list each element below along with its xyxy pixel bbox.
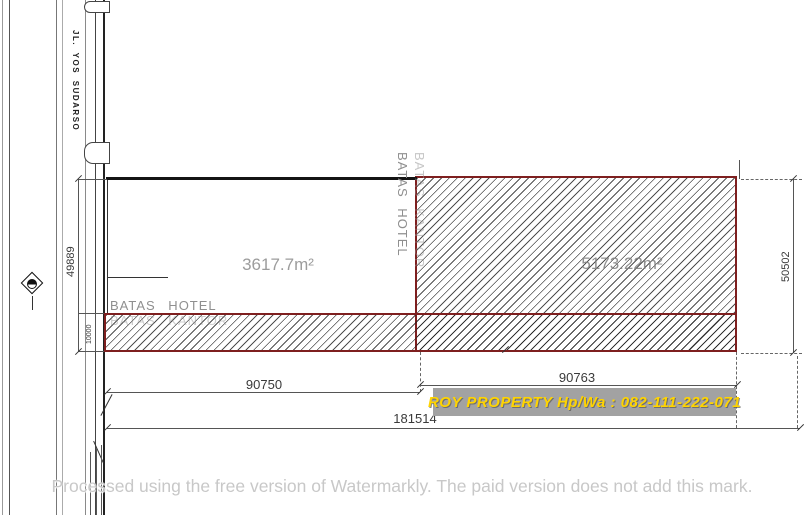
extension-line-dashed xyxy=(797,356,798,428)
extension-line xyxy=(739,160,740,179)
extension-line xyxy=(78,351,104,352)
property-ad-text: ROY PROPERTY Hp/Wa : 082-111-222-071 xyxy=(428,394,741,411)
culvert-symbol xyxy=(84,142,110,164)
batas-hotel-label-horizontal: BATAS HOTEL xyxy=(110,298,217,313)
dim-line-bottom-left xyxy=(107,392,420,393)
dim-tick xyxy=(797,424,804,431)
extension-line xyxy=(78,313,104,314)
road-name-label: JL. YOS SUDARSO xyxy=(71,30,80,131)
dim-line-left-height xyxy=(78,179,79,352)
road-line xyxy=(9,0,10,515)
dim-line-strip-height xyxy=(95,313,96,352)
road-line xyxy=(85,0,86,515)
extension-line xyxy=(78,179,107,180)
dim-line-right-height xyxy=(793,179,794,353)
area-label-right: 5173.22m² xyxy=(581,254,662,274)
plot-left-white xyxy=(107,179,415,313)
marker-stem xyxy=(32,296,33,310)
dim-text-left-height: 49889 xyxy=(65,246,77,277)
batas-hotel-label-vertical: BATAS HOTEL xyxy=(395,152,410,257)
property-ad-watermark: ROY PROPERTY Hp/Wa : 082-111-222-071 xyxy=(433,388,736,416)
road-line xyxy=(56,0,57,515)
dim-text-strip-height: 10000 xyxy=(86,325,93,344)
boundary-tick-line xyxy=(107,277,168,278)
area-label-left: 3617.7m² xyxy=(242,255,314,275)
batas-kantor-label-vertical: BATAS KANTOR xyxy=(412,152,427,268)
dim-line-total xyxy=(107,428,800,429)
culvert-symbol xyxy=(84,1,110,13)
watermarkly-text: Processed using the free version of Wate… xyxy=(0,476,804,497)
road-line xyxy=(62,0,63,515)
dim-text-right-height: 50502 xyxy=(780,251,792,282)
extension-line-dashed xyxy=(420,352,421,392)
extension-line-dashed xyxy=(736,352,737,428)
road-line xyxy=(95,0,96,515)
dim-text-total: 181514 xyxy=(393,411,436,426)
site-plan-drawing: JL. YOS SUDARSO 3617.7m² 5173.22m² BATAS… xyxy=(0,0,804,515)
dim-text-bottom-left: 90750 xyxy=(246,377,282,392)
marker-circle xyxy=(27,279,37,289)
dim-text-bottom-right: 90763 xyxy=(559,370,595,385)
road-edge-line xyxy=(103,0,105,515)
dim-tick xyxy=(417,388,424,395)
plot-left-top-boundary xyxy=(106,177,417,180)
road-line xyxy=(2,0,3,515)
batas-kantor-label-horizontal: BATAS KANTOR xyxy=(110,313,228,328)
dim-line-bottom-right xyxy=(420,385,737,386)
